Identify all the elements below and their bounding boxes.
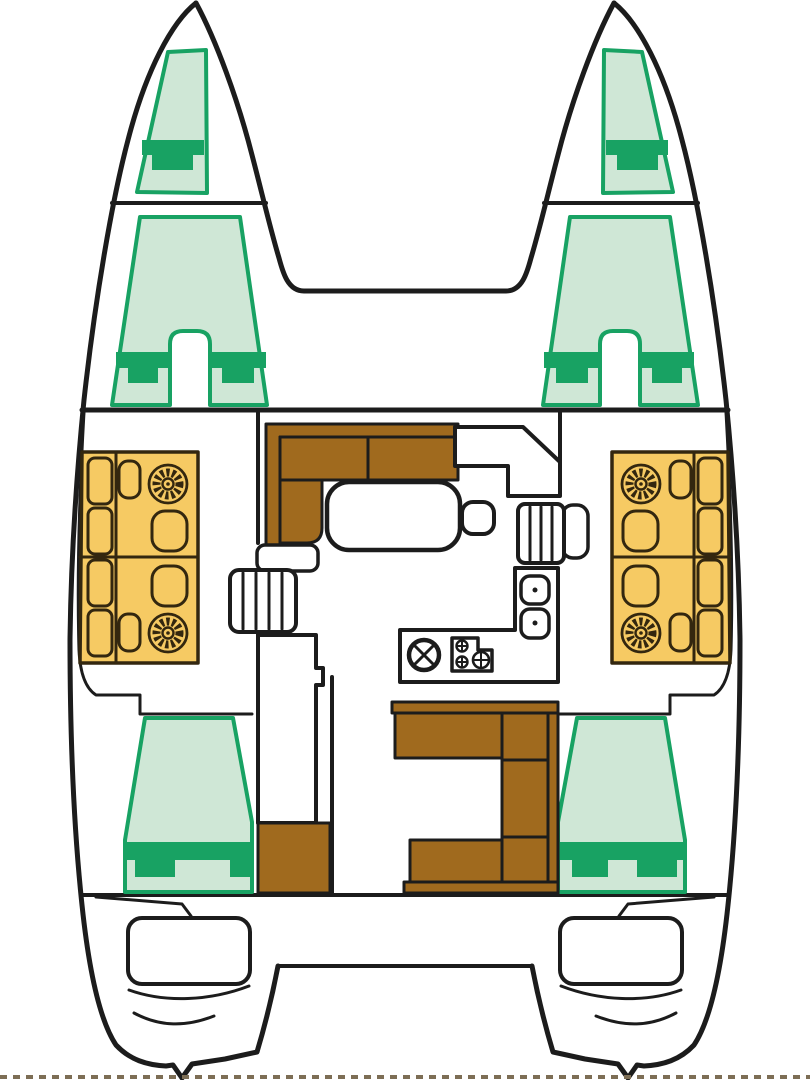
- cockpit-seat-rim: [404, 882, 558, 893]
- port-heads-block: [80, 452, 198, 663]
- saloon-stool: [462, 502, 494, 534]
- cockpit-seat-rim: [548, 713, 558, 893]
- starboard-heads-block: [612, 452, 730, 663]
- port-forepeak-berth: [137, 50, 207, 193]
- shower-drain-icon: [622, 614, 660, 652]
- port-aft-cabin-bed: [125, 718, 252, 892]
- shower-drain-icon: [149, 465, 187, 503]
- port-nav-desk: [258, 632, 323, 823]
- transom-step-line: [129, 986, 249, 999]
- sofa-cushion: [280, 437, 368, 480]
- inner-bow-and-foredeck-line: [196, 3, 614, 291]
- floor-plan-canvas: [0, 0, 810, 1080]
- shower-drain-icon: [149, 614, 187, 652]
- sofa-cushion: [368, 437, 458, 480]
- stair-landing: [257, 545, 318, 571]
- cockpit-seating: [392, 702, 558, 893]
- starboard-stern-quarter-line: [619, 897, 714, 916]
- transom-step-line: [134, 1013, 214, 1024]
- saloon-table: [327, 482, 460, 550]
- port-forward-cabin-bed: [112, 217, 267, 405]
- catamaran-floor-plan: [0, 0, 810, 1080]
- cockpit-seat: [395, 713, 502, 758]
- cockpit-seat-rim: [392, 702, 558, 713]
- starboard-forward-cabin-bed: [543, 217, 698, 405]
- starboard-forepeak-berth: [603, 50, 673, 193]
- transom-step-line: [561, 986, 681, 999]
- port-stern-quarter-line: [96, 897, 191, 916]
- transom-platform-starboard: [560, 918, 682, 1024]
- cockpit-seat: [502, 713, 548, 882]
- galley-sink: [521, 609, 549, 638]
- sofa-cushion: [280, 480, 322, 543]
- galley: [400, 568, 558, 682]
- companionway-stairs-port: [230, 545, 318, 632]
- companionway-stairs-starboard: [518, 504, 588, 563]
- starboard-aft-cabin-bed: [558, 718, 685, 892]
- cockpit-seat: [410, 840, 502, 882]
- transom-step-line: [596, 1013, 676, 1024]
- cockpit-bench-port: [258, 823, 330, 893]
- round-sink: [409, 640, 439, 670]
- shower-drain-icon: [622, 465, 660, 503]
- galley-corner-cabinet: [455, 427, 560, 496]
- transom-platform-port: [128, 918, 250, 1024]
- galley-sink: [521, 576, 549, 604]
